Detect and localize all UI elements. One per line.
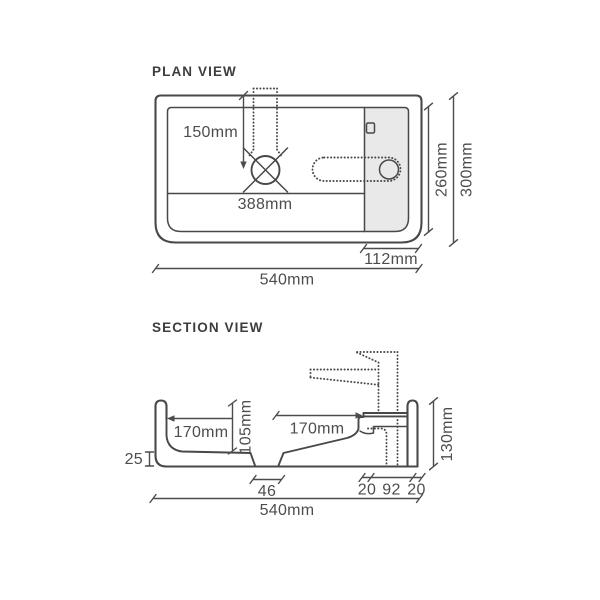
section-view-title: SECTION VIEW (152, 320, 263, 335)
dim-label: 170mm (290, 421, 345, 438)
dim-label-92: 92 (382, 482, 400, 499)
dim-bowl-depth: 105mm (229, 400, 255, 455)
dim-base-thickness: 25 (125, 451, 154, 468)
dim-label: 25 (125, 451, 143, 468)
dim-label: 300mm (459, 142, 476, 197)
dim-deck-segments: 20 92 20 (358, 474, 426, 499)
basin-technical-drawing: PLAN VIEW 150mm 388mm (0, 0, 600, 600)
dim-label: 112mm (364, 251, 418, 268)
dim-tap-deck-width: 112mm (361, 245, 422, 269)
dim-label: 540mm (260, 502, 315, 519)
dim-label-20-left: 20 (358, 482, 376, 499)
dim-label: 170mm (174, 424, 229, 441)
dim-bowl-left-half: 170mm (167, 415, 233, 441)
dim-bowl-width-label: 388mm (238, 196, 293, 213)
dim-overall-height: 130mm (430, 398, 457, 470)
tap-deck-area (365, 108, 409, 232)
dim-label: 150mm (183, 124, 238, 141)
dim-label: 130mm (439, 407, 456, 462)
basin-spec-drawing-page: PLAN VIEW 150mm 388mm (0, 0, 600, 600)
dim-label: 46 (258, 483, 276, 500)
dim-label-20-right: 20 (407, 482, 425, 499)
dim-label: 540mm (260, 272, 315, 289)
dim-label: 260mm (434, 142, 451, 197)
plan-view-title: PLAN VIEW (152, 64, 237, 79)
dim-label: 105mm (238, 400, 255, 455)
